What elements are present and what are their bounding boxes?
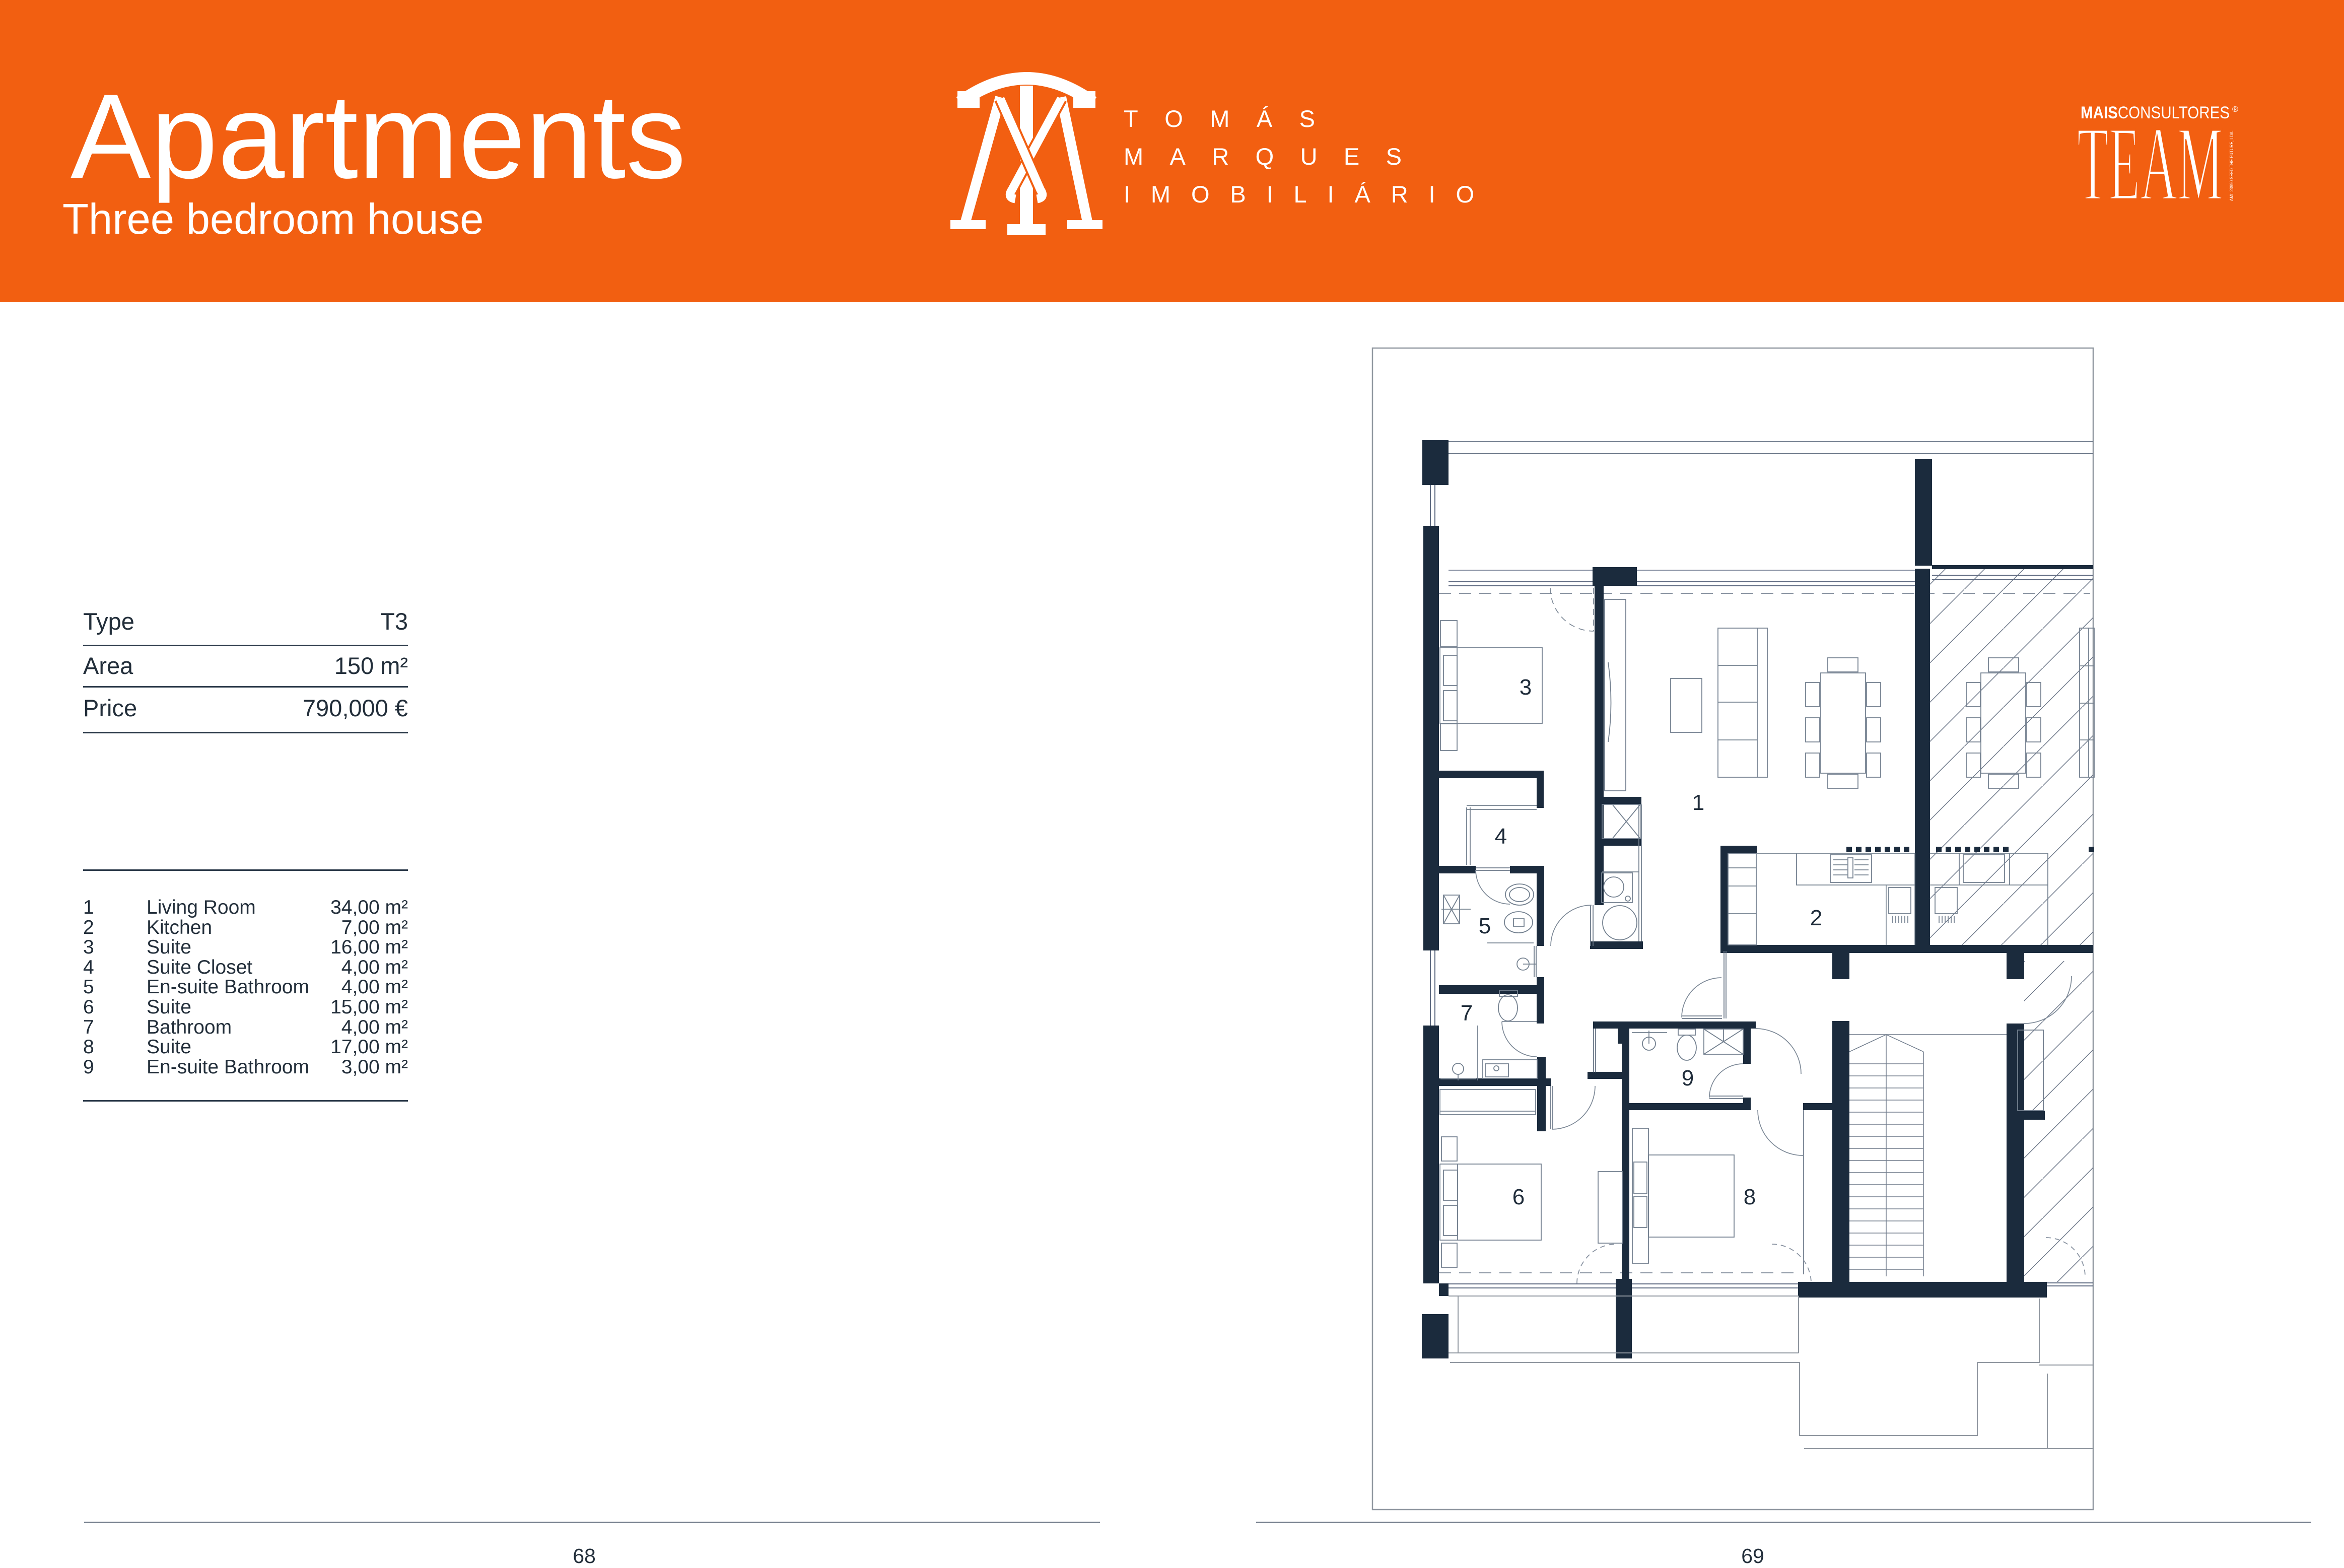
svg-text:3: 3: [1520, 675, 1532, 700]
svg-text:1: 1: [1692, 790, 1704, 815]
svg-text:9: 9: [1682, 1066, 1694, 1090]
svg-text:6: 6: [1512, 1185, 1525, 1209]
svg-text:2: 2: [1810, 906, 1822, 930]
svg-text:7: 7: [1461, 1001, 1473, 1026]
svg-text:8: 8: [1744, 1185, 1756, 1209]
svg-text:5: 5: [1479, 914, 1491, 938]
svg-text:4: 4: [1495, 824, 1507, 849]
